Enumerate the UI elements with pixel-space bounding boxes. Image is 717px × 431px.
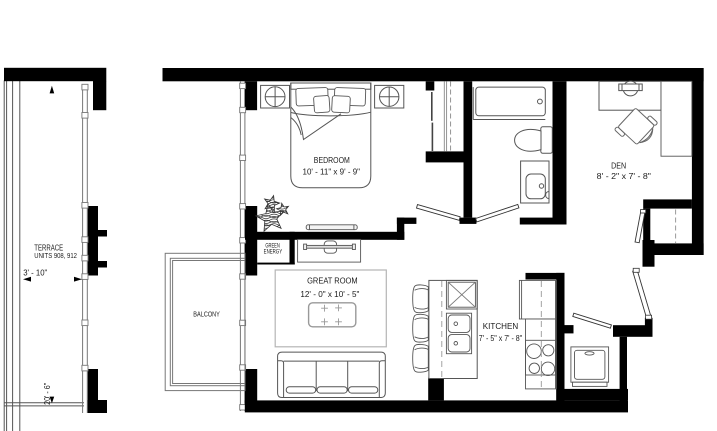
svg-text:10' - 11" x 9' - 9": 10' - 11" x 9' - 9" xyxy=(303,166,361,176)
svg-text:KITCHEN: KITCHEN xyxy=(483,321,518,331)
svg-text:GREEN: GREEN xyxy=(265,243,280,249)
svg-text:UNITS 908, 912: UNITS 908, 912 xyxy=(34,253,77,260)
svg-text:ENERGY: ENERGY xyxy=(264,249,283,255)
svg-text:12' - 0" x 10' - 5": 12' - 0" x 10' - 5" xyxy=(300,289,359,299)
svg-text:GREAT ROOM: GREAT ROOM xyxy=(307,276,358,286)
svg-text:BEDROOM: BEDROOM xyxy=(314,155,350,165)
svg-text:TERRACE: TERRACE xyxy=(34,243,63,252)
svg-text:8' - 2" x 7' - 8": 8' - 2" x 7' - 8" xyxy=(597,171,651,181)
svg-text:7' - 5" x 7' - 8": 7' - 5" x 7' - 8" xyxy=(479,333,522,343)
svg-text:DEN: DEN xyxy=(611,161,626,171)
svg-text:3' - 10": 3' - 10" xyxy=(23,268,47,277)
svg-text:20' - 6": 20' - 6" xyxy=(43,382,52,404)
svg-text:BALCONY: BALCONY xyxy=(193,309,220,318)
